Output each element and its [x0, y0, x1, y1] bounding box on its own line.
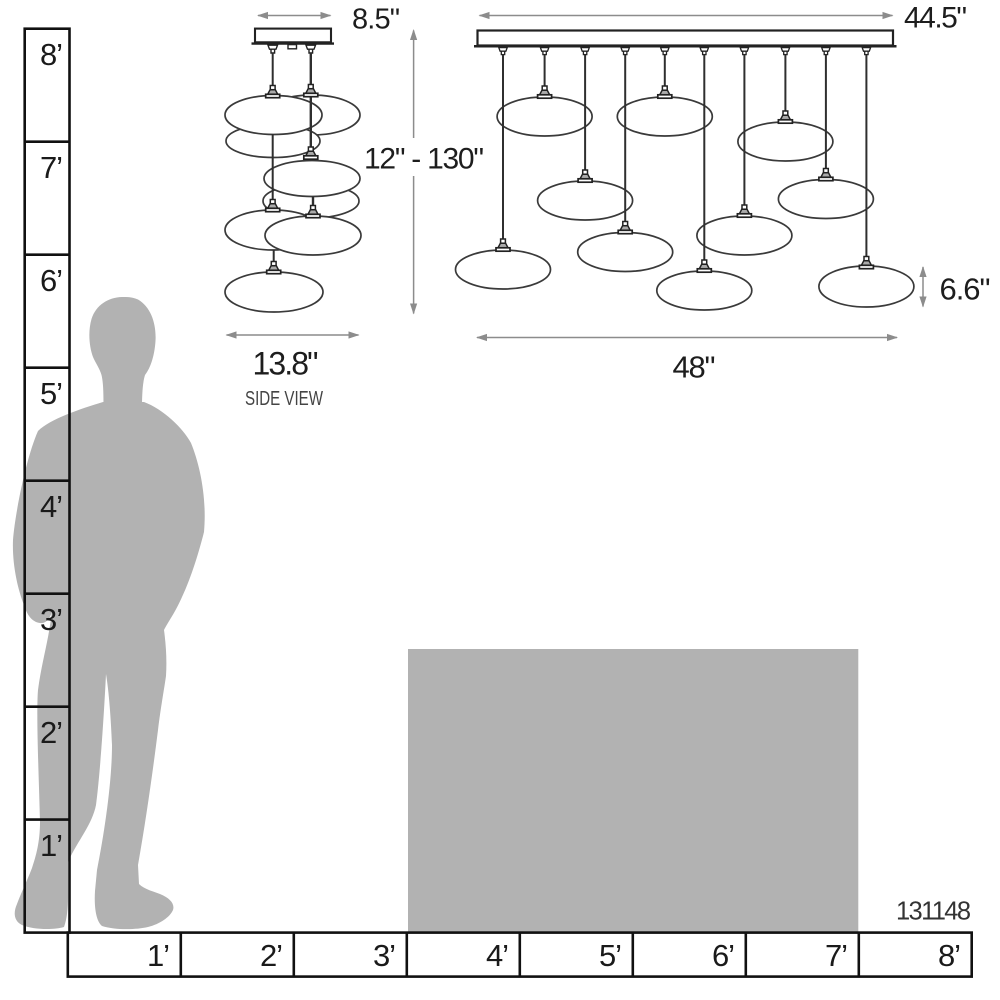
- svg-text:8’: 8’: [40, 37, 63, 72]
- svg-text:7’: 7’: [40, 150, 63, 185]
- svg-text:5’: 5’: [40, 376, 63, 411]
- svg-text:SIDE VIEW: SIDE VIEW: [245, 388, 323, 410]
- svg-text:12" - 130": 12" - 130": [364, 143, 484, 176]
- svg-text:1’: 1’: [40, 828, 63, 863]
- svg-text:2’: 2’: [260, 938, 283, 973]
- svg-text:3’: 3’: [373, 938, 396, 973]
- svg-text:1’: 1’: [147, 938, 170, 973]
- svg-text:2’: 2’: [40, 715, 63, 750]
- svg-text:6.6": 6.6": [940, 272, 991, 307]
- svg-text:8.5": 8.5": [352, 4, 400, 36]
- svg-text:44.5": 44.5": [904, 2, 967, 35]
- svg-text:48": 48": [673, 350, 716, 385]
- svg-text:6’: 6’: [40, 263, 63, 298]
- svg-text:13.8": 13.8": [253, 346, 319, 382]
- svg-text:4’: 4’: [486, 938, 509, 973]
- svg-text:8’: 8’: [938, 938, 961, 973]
- svg-text:7’: 7’: [825, 938, 848, 973]
- svg-text:131148: 131148: [896, 898, 971, 926]
- svg-text:6’: 6’: [712, 938, 735, 973]
- svg-text:5’: 5’: [599, 938, 622, 973]
- svg-text:4’: 4’: [40, 489, 63, 524]
- svg-text:3’: 3’: [40, 602, 63, 637]
